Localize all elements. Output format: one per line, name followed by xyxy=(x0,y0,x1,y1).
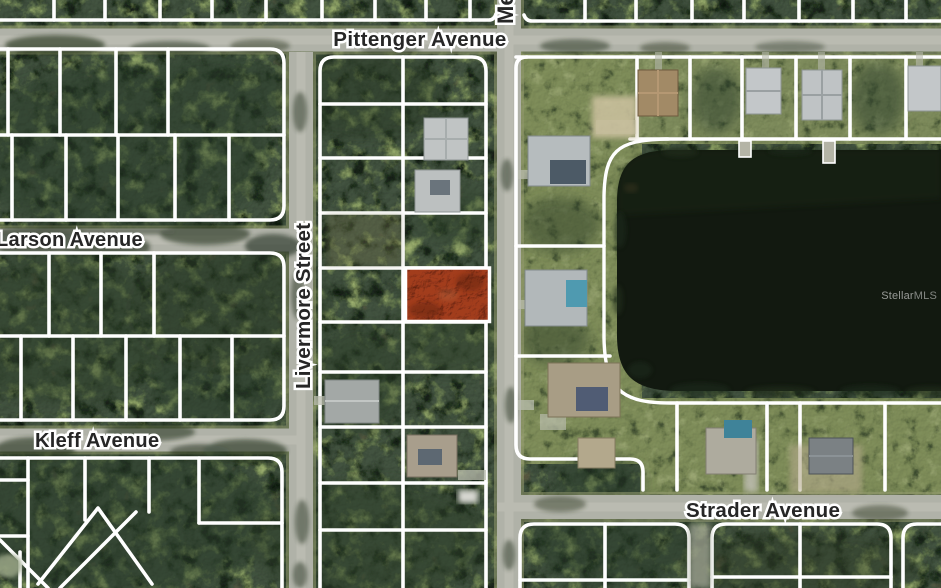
svg-text:Pittenger Avenue: Pittenger Avenue xyxy=(333,28,506,51)
svg-text:Me: Me xyxy=(493,0,518,24)
svg-text:Livermore Street: Livermore Street xyxy=(292,223,315,389)
svg-text:Kleff Avenue: Kleff Avenue xyxy=(35,430,159,452)
svg-text:Larson Avenue: Larson Avenue xyxy=(0,229,143,251)
svg-text:Strader Avenue: Strader Avenue xyxy=(686,499,840,522)
svg-text:StellarMLS: StellarMLS xyxy=(881,290,937,302)
